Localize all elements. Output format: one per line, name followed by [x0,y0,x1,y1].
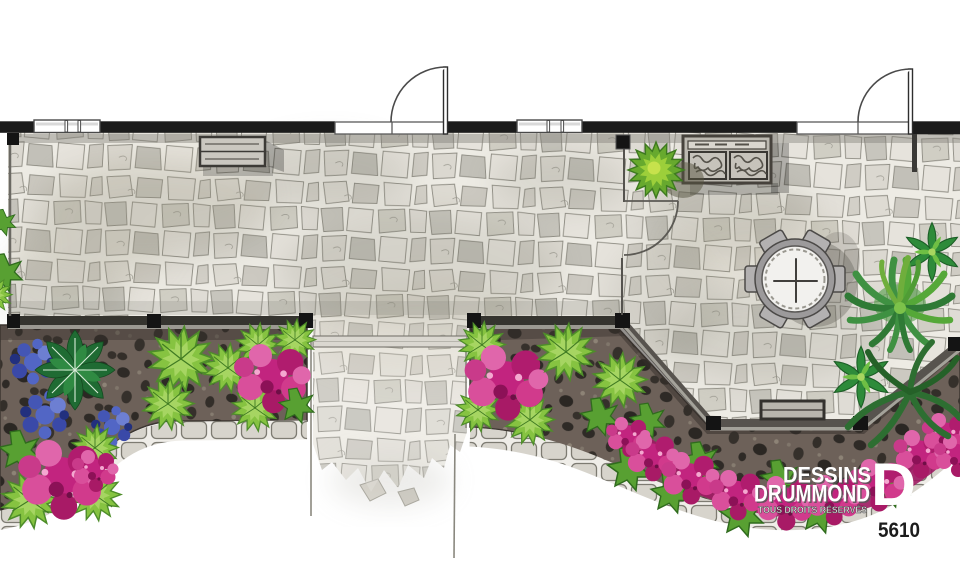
svg-text:5610: 5610 [878,519,920,542]
svg-text:D: D [871,451,916,518]
svg-text:TOUS DROITS RÉSERVÉS: TOUS DROITS RÉSERVÉS [758,505,867,516]
svg-text:DRUMMOND: DRUMMOND [754,481,870,508]
